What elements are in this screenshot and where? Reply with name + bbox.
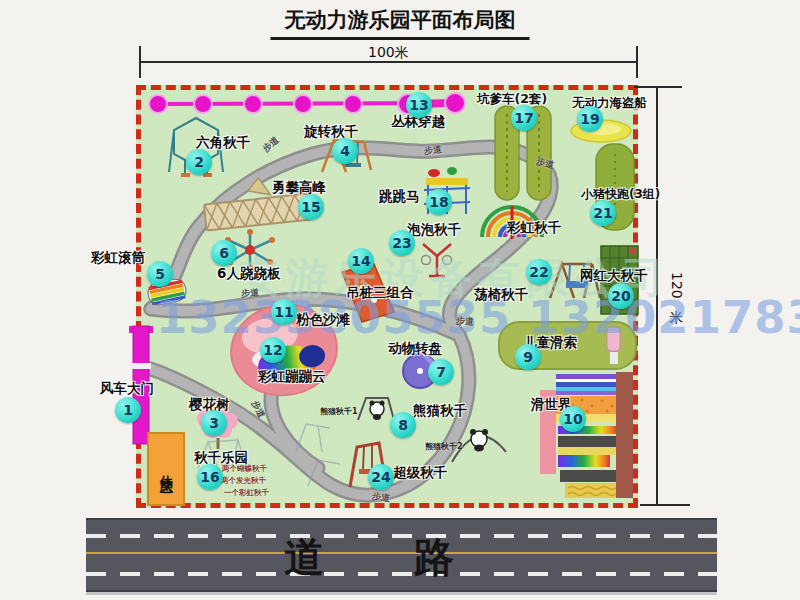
- attraction-badge-11: 11: [271, 299, 297, 325]
- attraction-badge-7: 7: [428, 359, 454, 385]
- attraction-label-22: 荡椅秋千: [474, 286, 528, 304]
- attraction-label-23: 泡泡秋千: [407, 221, 461, 239]
- walkway-label: 步道: [241, 286, 260, 300]
- right-dimension-tick-top: [634, 86, 682, 88]
- attraction-label-5: 彩虹滚筒: [91, 249, 145, 267]
- attraction-badge-18: 18: [426, 189, 452, 215]
- attraction-label-20: 网红大秋千: [580, 267, 648, 285]
- top-dimension-tick-left: [139, 46, 141, 78]
- attraction-label-15: 勇攀高峰: [272, 179, 326, 197]
- right-dimension-tick-bottom: [640, 504, 690, 506]
- attraction-label-17: 坑爹车(2套): [477, 91, 547, 108]
- attraction-badge-17: 17: [511, 105, 537, 131]
- road-label: 道 路: [284, 530, 492, 585]
- attraction-badge-20: 20: [608, 283, 634, 309]
- walkway-label: 步道: [423, 143, 442, 158]
- attraction-label-rainbow-swing: 彩虹秋千: [507, 219, 561, 237]
- attraction-badge-4: 4: [332, 138, 358, 164]
- playground-plan-canvas: 无动力游乐园平面布局图 100米 120米: [0, 0, 800, 600]
- attraction-badge-8: 8: [390, 412, 416, 438]
- attraction-badge-3: 3: [201, 410, 227, 436]
- sub-label: 熊猫秋千2: [425, 441, 463, 452]
- walkway-label: 步道: [371, 490, 391, 505]
- top-dimension-tick-right: [636, 46, 638, 78]
- sub-label: 熊猫秋千1: [320, 406, 358, 417]
- attraction-badge-10: 10: [560, 406, 586, 432]
- sub-label: 两个发光秋千: [221, 476, 266, 486]
- attraction-badge-2: 2: [186, 149, 212, 175]
- attraction-label-14: 吊桩三组合: [346, 284, 414, 302]
- attraction-badge-23: 23: [389, 230, 415, 256]
- rest-area-box: 休憩区: [147, 432, 185, 506]
- attraction-label-7: 动物转盘: [388, 340, 442, 358]
- attraction-label-12: 彩虹蹦蹦云: [258, 368, 326, 386]
- attraction-badge-24: 24: [368, 464, 394, 490]
- attraction-label-18: 跳跳马: [379, 188, 420, 206]
- attraction-badge-22: 22: [526, 259, 552, 285]
- right-dimension-line: [656, 87, 658, 506]
- width-dimension-label: 100米: [368, 44, 409, 62]
- attraction-badge-16: 16: [197, 464, 223, 490]
- attraction-badge-6: 6: [211, 240, 237, 266]
- rest-area-label: 休憩区: [157, 465, 175, 474]
- attraction-label-1: 风车大门: [100, 380, 154, 398]
- attraction-label-11: 粉色沙滩: [296, 311, 350, 329]
- walkway-label: 步道: [455, 314, 474, 329]
- attraction-badge-9: 9: [515, 344, 541, 370]
- attraction-badge-19: 19: [577, 106, 603, 132]
- attraction-badge-15: 15: [298, 194, 324, 220]
- sub-label: 两个蝴蝶秋千: [222, 464, 267, 474]
- page-title: 无动力游乐园平面布局图: [271, 6, 530, 40]
- attraction-badge-5: 5: [147, 261, 173, 287]
- attraction-label-24: 超级秋千: [393, 464, 447, 482]
- attraction-badge-14: 14: [348, 248, 374, 274]
- height-dimension-label: 120米: [668, 272, 686, 299]
- attraction-label-6: 6人跷跷板: [217, 265, 280, 283]
- attraction-label-8: 熊猫秋千: [413, 402, 467, 420]
- attraction-badge-13: 13: [406, 92, 432, 118]
- attraction-badge-12: 12: [260, 337, 286, 363]
- attraction-badge-21: 21: [590, 200, 616, 226]
- sub-label: 一个彩虹秋千: [224, 488, 269, 498]
- attraction-label-21: 小猪快跑(3组): [581, 186, 660, 203]
- attraction-badge-1: 1: [115, 397, 141, 423]
